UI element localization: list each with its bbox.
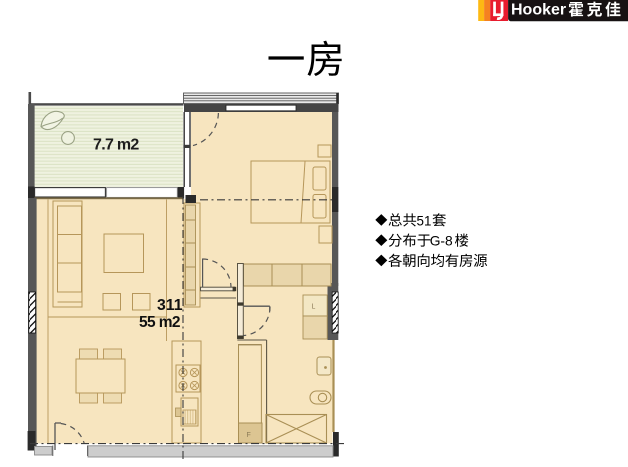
svg-text:7.7 m2: 7.7 m2 [93,137,139,154]
svg-text:Hooker: Hooker [511,2,566,19]
svg-text:51: 51 [417,213,432,228]
svg-text:55 m2: 55 m2 [139,314,180,331]
svg-text:L: L [312,304,316,311]
svg-text:311: 311 [157,297,183,314]
svg-text:F: F [247,432,251,439]
svg-text:G-8: G-8 [430,234,453,249]
